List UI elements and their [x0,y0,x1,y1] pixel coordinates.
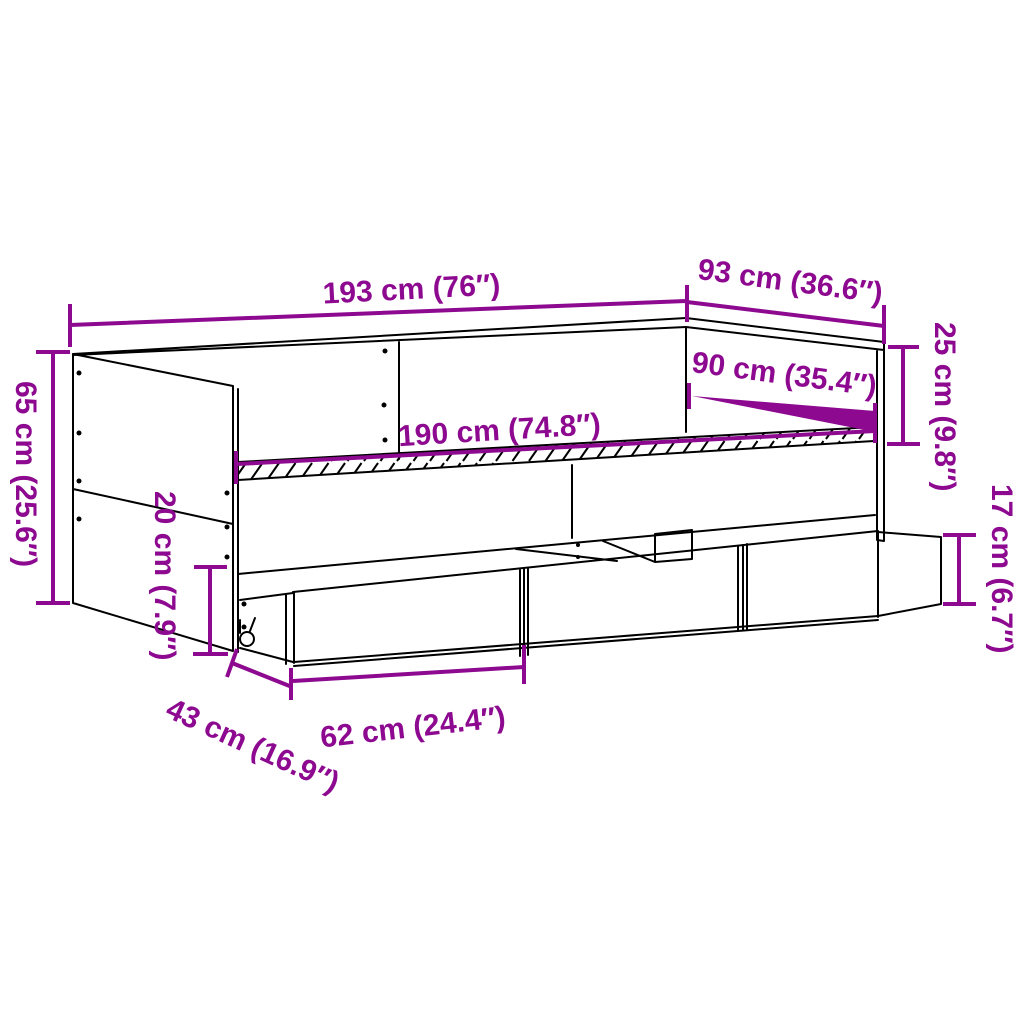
dim-label-drawer-width: 62 cm (24.4″) [319,701,508,755]
dim-label-mattress-width: 90 cm (35.4″) [690,346,879,403]
screw-dot [242,602,247,607]
screw-dot [383,349,388,354]
screw-dot [77,431,82,436]
screw-dot [382,403,387,408]
screw-dot [77,479,82,484]
dimension-diagram: 193 cm (76″) 93 cm (36.6″) 25 cm (9.8″) … [0,0,1024,1024]
dim-line-drawer-depth [227,649,292,700]
drawer-bottom-edge [294,616,878,666]
front-rail [238,465,875,574]
drawer-3-side-face [878,531,941,617]
drawer-3 [738,544,747,631]
caster-wheel [240,632,254,646]
screw-dot [383,438,388,443]
screw-dot [576,543,580,547]
dim-label-underbed-clearance: 20 cm (7.9″) [148,491,181,660]
dim-label-drawer-depth: 43 cm (16.9″) [161,692,344,799]
dim-line-drawer-height [943,535,976,604]
dim-label-backrest-height: 25 cm (9.8″) [928,322,961,491]
screw-dot [77,517,82,522]
dim-line-backrest [887,347,920,444]
dim-label-depth: 93 cm (36.6″) [696,253,885,310]
dim-label-length: 193 cm (76″) [322,268,501,310]
drawer-1 [240,592,294,664]
screw-dot [225,491,230,496]
dim-label-side-height: 65 cm (25.6″) [9,381,42,567]
screw-dot [576,555,580,559]
dim-label-drawer-height: 17 cm (6.7″) [985,484,1018,653]
screw-dot [242,625,247,630]
screw-dot [225,525,230,530]
screw-dot [77,371,82,376]
screw-dot [225,555,230,560]
daybed-diagram-canvas: 193 cm (76″) 93 cm (36.6″) 25 cm (9.8″) … [0,0,1024,1024]
arrow-wedge-icon [692,396,875,432]
